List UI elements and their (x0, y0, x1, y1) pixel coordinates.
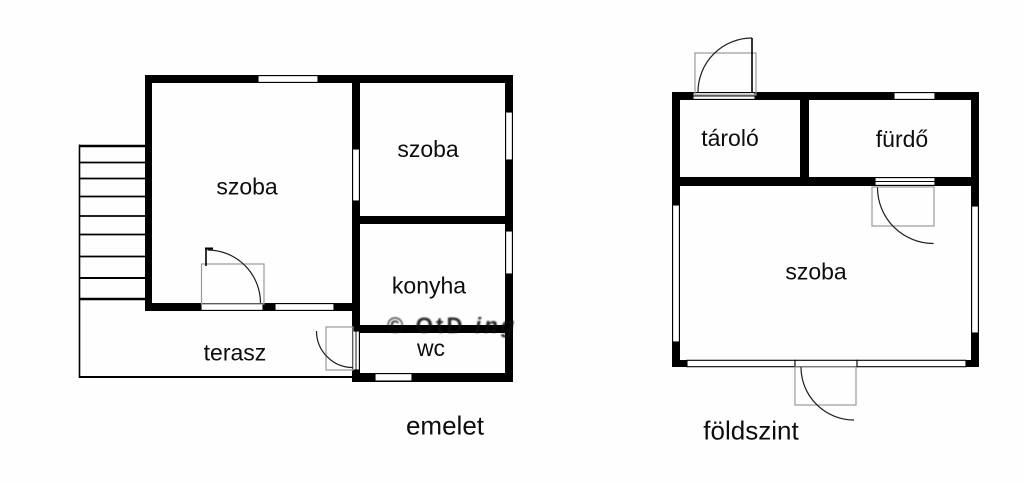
svg-text:wc: wc (416, 335, 445, 361)
svg-text:tároló: tároló (701, 125, 759, 151)
svg-text:szoba: szoba (397, 136, 459, 162)
svg-text:© OtD ing: © OtD ing (387, 313, 518, 338)
svg-text:emelet: emelet (406, 411, 485, 441)
svg-text:szoba: szoba (216, 174, 278, 200)
svg-text:terasz: terasz (204, 340, 267, 366)
svg-text:konyha: konyha (392, 273, 466, 299)
svg-text:szoba: szoba (785, 259, 847, 285)
svg-text:fürdő: fürdő (876, 126, 928, 152)
svg-text:földszint: földszint (703, 416, 799, 446)
